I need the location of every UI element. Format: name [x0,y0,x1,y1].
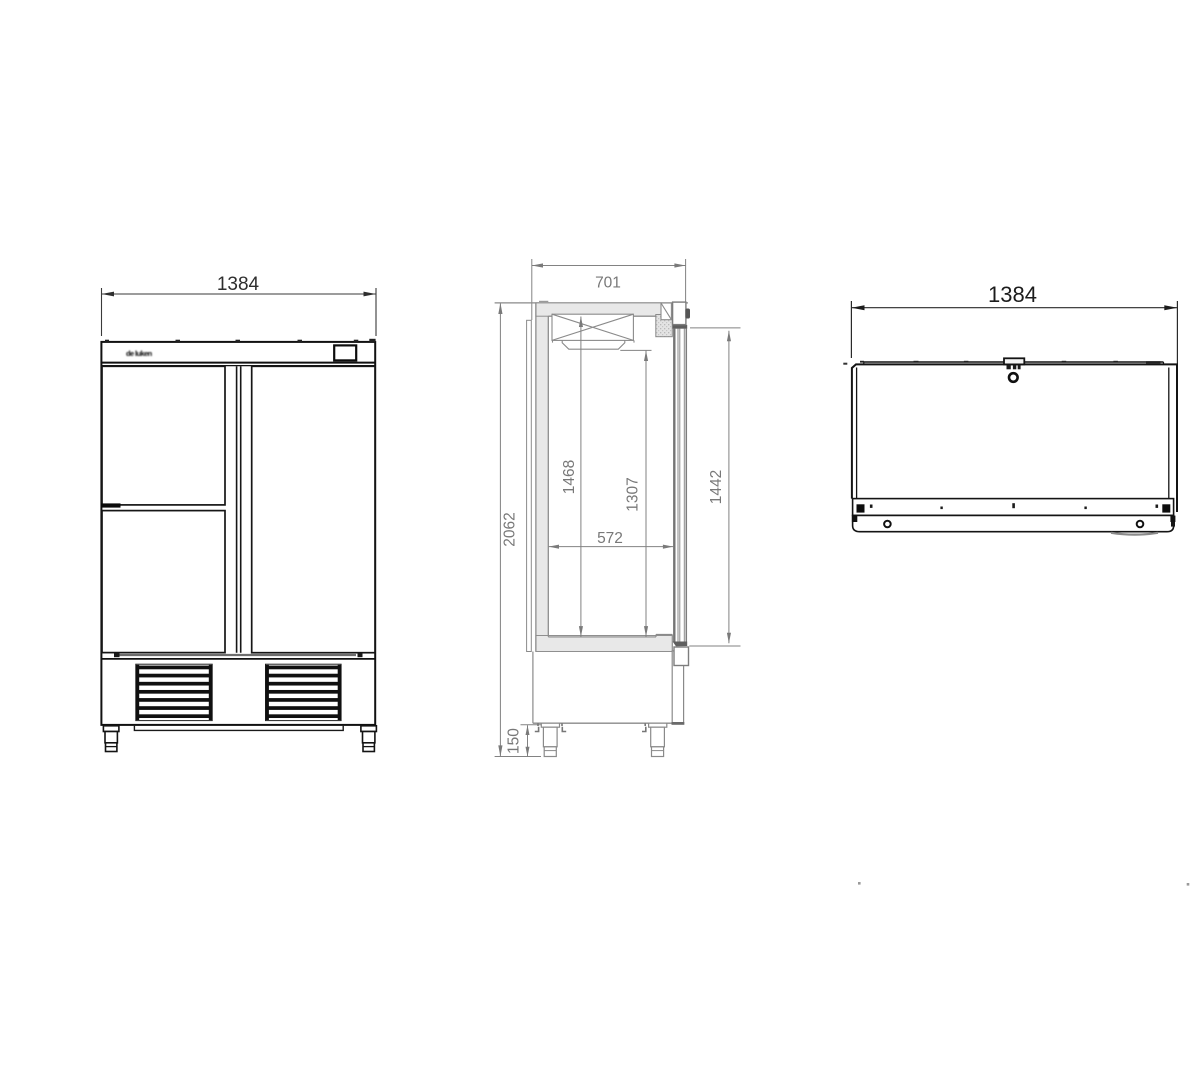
svg-text:572: 572 [597,530,623,547]
svg-text:1384: 1384 [217,274,260,295]
svg-text:2062: 2062 [502,512,519,546]
svg-text:701: 701 [595,275,621,292]
svg-text:1468: 1468 [561,460,578,494]
svg-text:1442: 1442 [708,470,725,504]
svg-text:1307: 1307 [625,477,642,511]
svg-text:1384: 1384 [988,282,1037,307]
svg-text:150: 150 [506,728,523,754]
svg-text:de luken: de luken [126,349,153,358]
